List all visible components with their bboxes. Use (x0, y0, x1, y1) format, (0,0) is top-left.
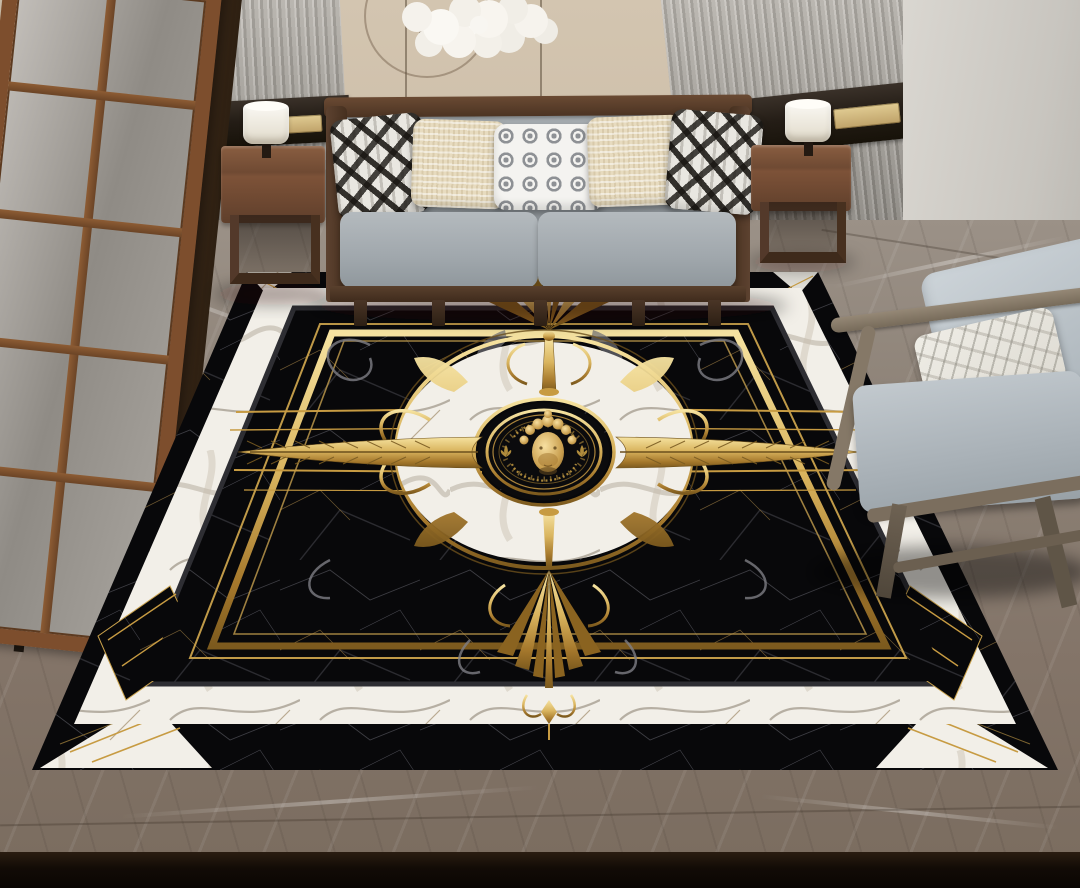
flower-chandelier (470, 16, 488, 34)
sofa-leg (534, 300, 547, 326)
lamp-shade (243, 104, 289, 144)
lamp-shade (785, 102, 831, 142)
table-lamp-right (785, 102, 831, 156)
lamp-stem (262, 142, 271, 158)
lamp-stem (804, 140, 813, 156)
sofa (326, 94, 750, 322)
armchair (828, 246, 1080, 606)
side-table-base (230, 215, 319, 284)
side-table-left (221, 146, 325, 284)
sofa-leg (632, 300, 645, 326)
table-lamp-left (243, 104, 289, 158)
sofa-seat-cushion-right (538, 212, 736, 288)
armchair-leg (1035, 496, 1078, 609)
sofa-leg (708, 300, 721, 326)
pillow-ikat-right (664, 108, 764, 216)
wall-panel-right (903, 0, 1080, 253)
sofa-leg (432, 300, 445, 326)
sofa-leg (354, 300, 367, 326)
floor-edge-strip (0, 852, 1080, 888)
pillow-cream-left (410, 118, 507, 209)
sofa-seat-cushion-left (340, 212, 538, 288)
living-room-scene (0, 0, 1080, 888)
